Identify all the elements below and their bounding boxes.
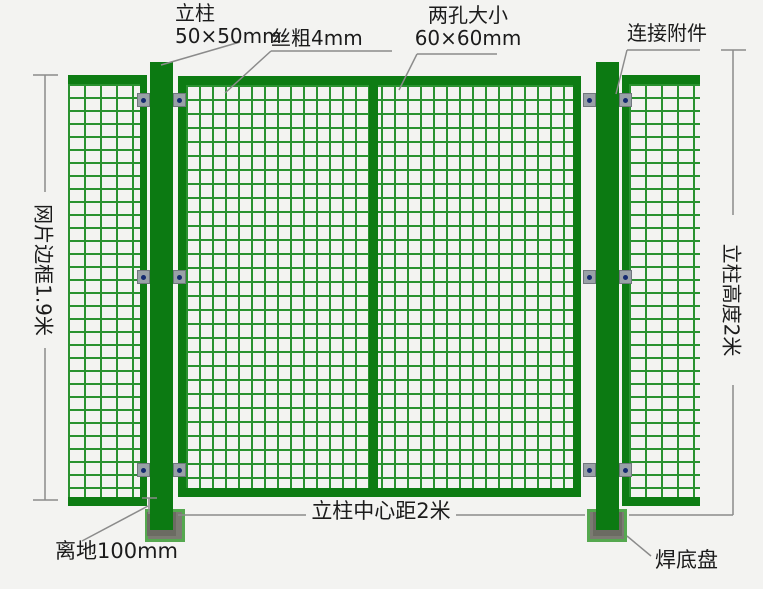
right-panel-bottom-frame <box>622 497 700 506</box>
connection-clamp <box>619 93 632 107</box>
leader-clearance-diagonal <box>82 506 148 541</box>
bolt-icon <box>177 275 182 280</box>
fence-product-diagram: 立柱 50×50mm 丝粗4mm 两孔大小 60×60mm 连接附件 网片边框1… <box>0 0 763 589</box>
bolt-icon <box>177 98 182 103</box>
main-panel-top-frame <box>178 76 581 85</box>
bolt-icon <box>177 468 182 473</box>
main-panel-bottom-frame <box>178 488 581 497</box>
main-panel-center-divider <box>369 76 378 497</box>
post-spec-label: 立柱 50×50mm <box>175 2 282 48</box>
bolt-icon <box>141 468 146 473</box>
right-mesh-panel <box>629 84 700 497</box>
bolt-icon <box>623 275 628 280</box>
connection-clamp <box>173 93 186 107</box>
post-spec-line1: 立柱 <box>175 2 282 25</box>
right-panel-left-frame <box>622 75 629 506</box>
main-mesh-panel <box>186 85 573 488</box>
main-panel-right-frame <box>573 76 581 497</box>
bolt-icon <box>623 468 628 473</box>
left-mesh-panel <box>68 84 140 497</box>
bolt-icon <box>587 468 592 473</box>
post-spec-line2: 50×50mm <box>175 25 282 48</box>
connection-clamp <box>137 93 150 107</box>
connection-clamp <box>583 93 596 107</box>
leader-base-diagonal <box>627 536 651 556</box>
base-plate-label: 焊底盘 <box>655 549 718 572</box>
connection-clamp <box>173 463 186 477</box>
left-post <box>150 62 173 530</box>
hole-size-label: 两孔大小 60×60mm <box>398 4 538 50</box>
connection-clamp <box>619 270 632 284</box>
connection-clamp <box>137 463 150 477</box>
left-panel-right-frame <box>140 75 147 506</box>
connection-clamp <box>583 463 596 477</box>
bolt-icon <box>623 98 628 103</box>
bolt-icon <box>141 98 146 103</box>
connection-clamp <box>619 463 632 477</box>
right-panel-top-frame <box>622 75 700 84</box>
bolt-icon <box>587 98 592 103</box>
right-post <box>596 62 619 530</box>
bolt-icon <box>587 275 592 280</box>
connection-clamp <box>137 270 150 284</box>
post-height-label: 立柱高度2米 <box>719 244 748 357</box>
connector-label: 连接附件 <box>627 22 707 45</box>
mesh-frame-height-label: 网片边框1.9米 <box>31 204 60 336</box>
connection-clamp <box>173 270 186 284</box>
ground-clearance-label: 离地100mm <box>55 540 178 563</box>
left-panel-bottom-frame <box>68 497 147 506</box>
left-panel-top-frame <box>68 75 147 84</box>
bolt-icon <box>141 275 146 280</box>
connection-clamp <box>583 270 596 284</box>
wire-thickness-label: 丝粗4mm <box>271 27 363 50</box>
hole-size-line2: 60×60mm <box>398 27 538 50</box>
hole-size-line1: 两孔大小 <box>398 4 538 27</box>
post-center-distance-label: 立柱中心距2米 <box>306 500 456 523</box>
main-panel-left-frame <box>178 76 186 497</box>
